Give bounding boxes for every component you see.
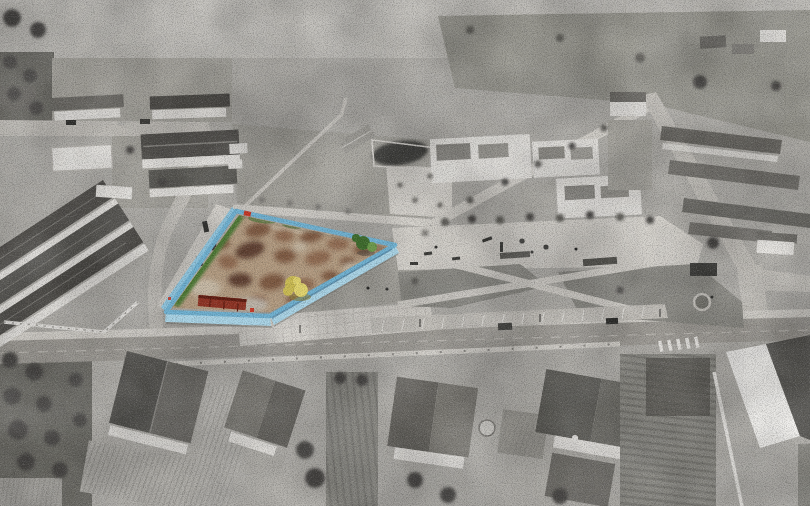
aerial-photo	[0, 0, 810, 506]
film-grain-light	[0, 0, 810, 506]
aerial-photo-canvas	[0, 0, 810, 506]
